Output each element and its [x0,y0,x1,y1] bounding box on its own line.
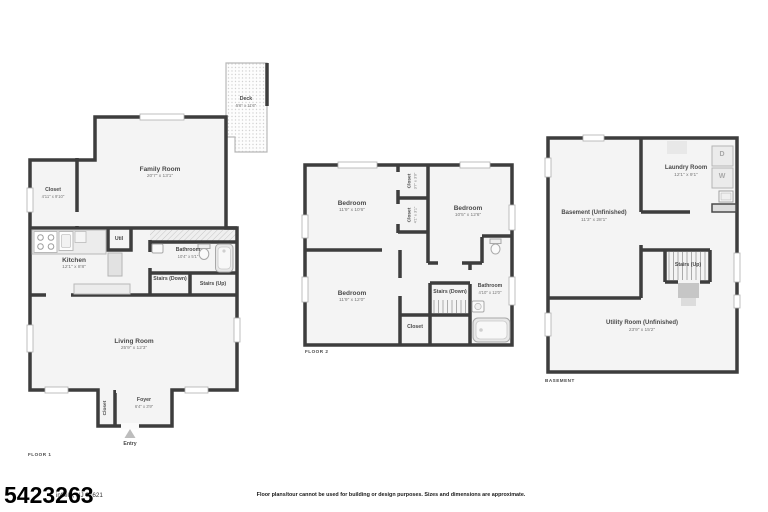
dryer-letter: D [719,151,724,158]
floor2-closet-top-dims: 3'7" x 3'0" [414,173,419,190]
bedroom-top-left-label: Bedroom 11'9" x 10'6" [338,200,367,215]
floor2-stairs-down-name: Stairs (Down) [427,289,473,296]
floor2-stairs-down-label: Stairs (Down) [427,289,473,296]
foyer-closet-label: Closet [103,401,109,416]
foyer-dims: 6'4" x 3'9" [135,404,153,409]
util-label: Util [115,236,123,243]
living-room-dims: 25'9" x 12'3" [114,346,153,352]
floor1-bathroom-sink-icon [152,244,163,253]
fridge-icon [108,253,122,276]
basement-tag: BASEMENT [545,378,575,383]
deck-label: Deck 5'6" x 11'6" [236,96,256,108]
floor1-closet-name: Closet [42,187,65,194]
floor1-bathroom-dims: 10'4" x 5'1" [176,254,201,259]
stove-icon [34,232,57,253]
laundry-tub-icon [712,204,736,212]
floor2-closet-top-label: Closet 3'7" x 3'0" [407,173,418,190]
entry-door-opening [121,423,139,430]
basement-room-dims: 11'3" x 28'1" [561,218,626,224]
bedroom-right-label: Bedroom 10'5" x 12'6" [454,205,483,220]
floor1-closet-label: Closet 4'11" x 9'10" [42,187,65,199]
floor1-stairs-up-name: Stairs (Up) [200,281,226,288]
basement-room-label: Basement (Unfinished) 11'3" x 28'1" [561,210,626,224]
listing-number: 5423263 [4,482,94,509]
floor2-bathtub-icon [473,318,510,342]
entry-arrow-icon [125,429,136,438]
basement-stairs-up-label: Stairs (Up) [675,262,701,269]
bedroom-bottom-left-dims: 11'9" x 12'0" [338,298,367,304]
floor1-bathroom-label: Bathroom 10'4" x 5'1" [176,247,201,259]
floor2-tag: FLOOR 2 [305,349,328,354]
floor2-bathroom-label: Bathroom 4'10" x 12'0" [478,283,503,295]
util-name: Util [115,236,123,243]
deck-dims: 5'6" x 11'6" [236,103,256,108]
floor1-tag: FLOOR 1 [28,452,51,457]
laundry-sink-icon [719,191,733,202]
kitchen-label: Kitchen 12'1" x 8'8" [62,257,86,272]
floor1-closet-dims: 4'11" x 9'10" [42,194,65,199]
floor1-void-hatch [150,230,237,241]
disclaimer-text: Floor plans/tour cannot be used for buil… [257,492,526,498]
family-room-label: Family Room 20'7" x 13'1" [140,166,181,181]
floor2-closet-mid-label: Closet 4'1" x 3'1" [407,207,418,224]
basement-room-name: Basement (Unfinished) [561,210,626,218]
kitchen-dims: 12'1" x 8'8" [62,265,86,271]
entry-name: Entry [123,441,136,448]
floor2-closet-bottom-name: Closet [407,324,423,331]
floor2-plan [302,162,515,345]
basement-plan [545,135,740,372]
bedroom-bottom-left-label: Bedroom 11'9" x 12'0" [338,290,367,305]
floorplan-page: Deck 5'6" x 11'6" Family Room 20'7" x 13… [0,0,768,512]
foyer-name: Foyer [135,397,153,404]
floor1-stairs-down-name: Stairs (Down) [147,276,193,283]
utility-room-dims: 23'9" x 15'2" [606,328,678,334]
basement-stair-landing [678,283,699,306]
bedroom-right-dims: 10'5" x 12'6" [454,213,483,219]
floorplan-drawing [0,0,768,512]
floor2-closet-bottom-label: Closet [407,324,423,331]
foyer-opening [116,387,139,393]
laundry-room-name: Laundry Room [665,165,707,173]
entry-label: Entry [123,441,136,448]
floor2-bathroom-name: Bathroom [478,283,503,290]
floor1-stairs-up-label: Stairs (Up) [200,281,226,288]
utility-room-label: Utility Room (Unfinished) 23'9" x 15'2" [606,320,678,334]
laundry-room-label: Laundry Room 12'1" x 9'1" [665,165,707,179]
floor1-plan [27,63,267,438]
floor2-toilet-icon [490,239,501,254]
floor2-closet-mid-dims: 4'1" x 3'1" [414,207,419,224]
utility-room-name: Utility Room (Unfinished) [606,320,678,328]
washer-letter: W [719,173,726,180]
basement-stairs-up-name: Stairs (Up) [675,262,701,269]
water-heater-icon [667,141,687,154]
floor1-stairs-down-label: Stairs (Down) [147,276,193,283]
floor1-bathtub-icon [216,244,234,272]
foyer-closet-name: Closet [103,401,109,416]
floor2-bathroom-sink-icon [472,301,484,312]
floor2-bathroom-dims: 4'10" x 12'0" [478,290,503,295]
floor1-bathroom-name: Bathroom [176,247,201,254]
foyer-label: Foyer 6'4" x 3'9" [135,397,153,409]
deck-name: Deck [236,96,256,103]
family-room-dims: 20'7" x 13'1" [140,174,181,180]
bedroom-top-left-dims: 11'9" x 10'6" [338,208,367,214]
living-room-label: Living Room 25'9" x 12'3" [114,338,153,353]
laundry-room-dims: 12'1" x 9'1" [665,173,707,179]
